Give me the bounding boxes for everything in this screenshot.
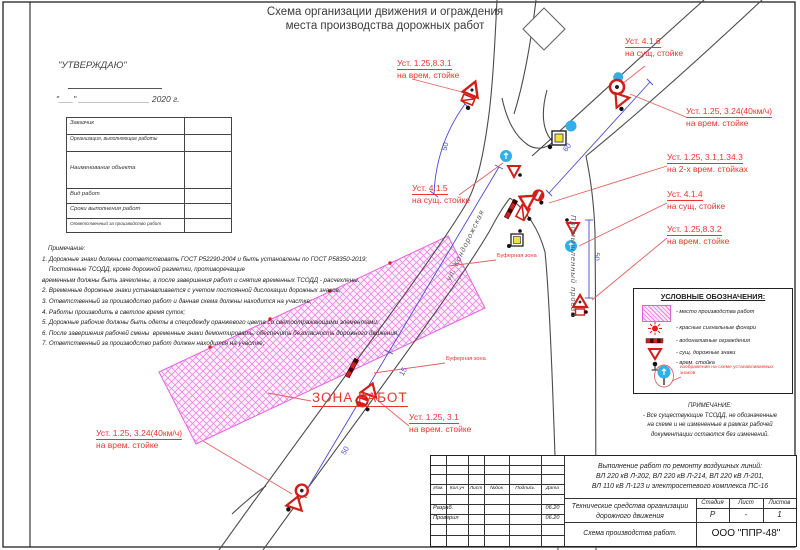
callout-1-25-3-1-1-34-3: Уст. 1.25, 3.1,1.34.3на 2-х врем. стойка… [667,152,748,175]
tb-doc-title: Технические средства организации дорожно… [564,498,696,521]
requisites-form: Заказчик Организация, выполняющие работы… [66,117,232,233]
grid-line [446,456,447,546]
form-row-value [185,189,231,203]
tb-role-proveril: Проверил [433,515,483,521]
callout-4-1-4: Уст. 4.1.4на сущ, стойке [667,189,725,212]
note-line: 2. Временные дорожные знаки устанавливае… [42,286,372,297]
buffer-zone-label: Буферная зона [446,356,486,362]
title-block: Изм. Кол.уч Лист №док Подпись Дата Разра… [430,455,797,547]
form-row: Ответственный за производство работ [67,219,231,232]
legend-title: УСЛОВНЫЕ ОБОЗНАЧЕНИЯ: [634,292,792,301]
tb-stage-value: Р [696,508,729,522]
buffer-zone-label: Буферная зона [497,253,537,259]
legend-installed-sign-icon [642,363,682,391]
grid-line [509,456,510,546]
form-row: Наименование объекта [67,152,231,189]
tb-scheme-label: Схема производства работ. [564,522,696,546]
legend-lamp-icon [646,322,664,335]
dimension-label-50-side: 50 [593,244,602,270]
tb-col-ndok: №док [484,484,509,494]
work-zone-label: ЗОНА РАБОТ [312,390,408,407]
grid-line [484,456,485,546]
legend-note: ПРИМЕЧАНИЕ: - Все существующие ТСОДД, не… [622,402,798,440]
tb-col-izm: Изм. [431,484,446,494]
tb-sheets-label: Листов [763,498,796,508]
grid-line [431,474,564,475]
note-line: 6. После завершения рабочей смены времен… [42,329,372,340]
callout-mount: на врем. стойке [96,440,182,451]
tb-col-koluch: Кол.уч [446,484,468,494]
sheet-title-line1: Схема организации движения и ограждения [160,6,610,18]
callout-mount: на врем, стойке [397,70,459,81]
tb-sheet-value: - [729,508,763,522]
note-line: временным должны быть зачехлены, а после… [42,276,372,287]
callout-1-25-3-24-right: Уст. 1.25, 3.24(40км/ч)на врем. стойке [686,106,772,129]
form-row-value [185,135,231,151]
grid-line [431,535,564,536]
callout-sign-codes: Уст. 1.25,8.3.1 [397,58,452,70]
form-row-label: Вид работ [67,189,185,203]
form-row-label: Ответственный за производство работ [67,219,185,232]
legend-item-label: - место производства работ [676,309,754,315]
callout-sign-codes: Уст. 1.25, 3.1,1.34.3 [667,152,743,164]
street-name-side: Промышленный проезд [569,215,578,465]
legend-installed-signs-note: изображения на схеме устанавливаемых зна… [680,365,788,377]
grid-line [468,456,469,546]
tb-sheets-value: 1 [763,508,796,522]
tb-stage-label: Стадия [696,498,729,508]
legend-barrier-icon [645,337,665,345]
callout-1-25-3-1: Уст. 1.25, 3.1на врем. стойке [409,412,471,435]
callout-mount: на врем. стойке [667,236,729,247]
sign-cluster-1-25-8-3-1 [457,79,483,112]
callout-sign-codes: Уст. 4.1.6 [625,36,661,48]
callout-sign-codes: Уст. 4.1.4 [667,189,703,201]
legend-note-title: ПРИМЕЧАНИЕ: [622,402,798,412]
note-line: 5. Дорожные рабочие должны быть одеты в … [42,318,372,329]
form-row-label: Сроки выполнения работ [67,204,185,218]
legend-hatch-swatch [642,305,671,322]
tb-col-list: Лист [468,484,484,494]
form-row: Сроки выполнения работ [67,204,231,219]
form-row: Вид работ [67,189,231,204]
legend-note-line: документации остаются без изменений. [622,431,798,441]
form-row: Организация, выполняющие работы [67,135,231,152]
tb-project-line: ВЛ 220 кВ Л-202, ВЛ 220 кВ Л-214, ВЛ 220… [564,472,796,482]
callout-1-25-8-3-2: Уст. 1.25,8.3.2на врем. стойке [667,224,729,247]
tb-sheet-label: Лист [729,498,763,508]
legend-item-label: - водоналивные ограждения [676,338,750,344]
legend-item-label: - красные сигнальные фонари [676,325,756,331]
tb-col-podpis: Подпись [509,484,541,494]
tb-col-data: Дата [541,484,564,494]
form-row: Заказчик [67,118,231,135]
grid-line [431,524,564,525]
notes-block: Примечание: 1. Дорожные знаки должны соо… [42,244,372,350]
form-row-value [185,204,231,218]
callout-4-1-5: Уст. 4.1.5на сущ. стойке [412,183,470,206]
form-row-label: Заказчик [67,118,185,134]
tb-role-razrab: Разраб. [433,505,483,511]
form-row-label: Наименование объекта [67,152,185,188]
grid-line [541,456,542,546]
notes-heading: Примечание: [42,244,372,255]
callout-sign-codes: Уст. 4.1.5 [412,183,448,195]
callout-sign-codes: Уст. 1.25,8.3.2 [667,224,722,236]
note-line: 4. Работы производить в светлое время су… [42,308,372,319]
tb-project-line: Выполнение работ по ремонту воздушных ли… [564,462,796,472]
callout-1-25-3-24-left: Уст. 1.25, 3.24(40км/ч)на врем. стойке [96,428,182,451]
callout-4-1-6: Уст. 4.1.6на сущ, стойке [625,36,683,59]
callout-mount: на сущ, стойке [667,201,725,212]
grid-line [431,494,564,495]
tb-date-razrab: 06.20 [541,505,564,511]
approve-signature-line [68,88,162,89]
drawing-sheet: Схема организации движения и ограждения … [0,0,800,550]
tb-project-line: ВЛ 110 кВ Л-123 и электросетевого компле… [564,482,796,492]
legend-box: УСЛОВНЫЕ ОБОЗНАЧЕНИЯ: - место производст… [633,288,793,394]
callout-1-25-8-3-1: Уст. 1.25,8.3.1на врем, стойке [397,58,459,81]
note-line: 3. Ответственный за производство работ и… [42,297,372,308]
sign-cluster-1-25-3-24 [285,482,310,516]
tb-date-proveril: 06.20 [541,515,564,521]
legend-give-way-icon [646,346,664,361]
form-row-label: Организация, выполняющие работы [67,135,185,151]
tb-project-description: Выполнение работ по ремонту воздушных ли… [564,456,796,492]
note-line: 1. Дорожные знаки должны соответствовать… [42,255,372,266]
sheet-title-line2: места производства дорожных работ [160,20,610,32]
callout-sign-codes: Уст. 1.25, 3.24(40км/ч) [686,106,772,118]
blue-sign-icon [566,121,577,132]
tb-doc-title-line: дорожного движения [564,512,696,522]
form-row-value [185,118,231,134]
grid-line [431,465,564,466]
give-way-icon [508,166,522,177]
callout-mount: на сущ, стойке [625,48,683,59]
sign-cluster-4-1-6 [599,70,640,112]
approve-date-line: "___" _______________ 2020 г. [56,94,180,104]
legend-note-line: - Все существующие ТСОДД, не обозначенны… [622,412,798,422]
legend-item-label: - сущ. дорожные знаки [676,350,735,356]
tb-doc-title-line: Технические средства организации [564,502,696,512]
form-row-value [185,219,231,232]
form-row-value [185,152,231,188]
approve-stamp: "УТВЕРЖДАЮ" [58,60,127,71]
note-line: Постоянные ТСОДД, кроме дорожной разметк… [42,265,372,276]
sign-4-1-5 [500,150,512,162]
callout-mount: на врем. стойке [409,424,471,435]
callout-mount: на 2-х врем. стойках [667,164,748,175]
callout-mount: на сущ. стойке [412,195,470,206]
note-line: 7. Ответственный за производство работ д… [42,339,372,350]
legend-note-line: на схеме и не измененные в рамках рабоче… [622,421,798,431]
tb-company-name: ООО "ППР-48" [696,522,796,546]
traffic-light-icon-2 [507,229,523,248]
callout-sign-codes: Уст. 1.25, 3.1 [409,412,459,424]
callout-sign-codes: Уст. 1.25, 3.24(40км/ч) [96,428,182,440]
callout-mount: на врем. стойке [686,118,772,129]
